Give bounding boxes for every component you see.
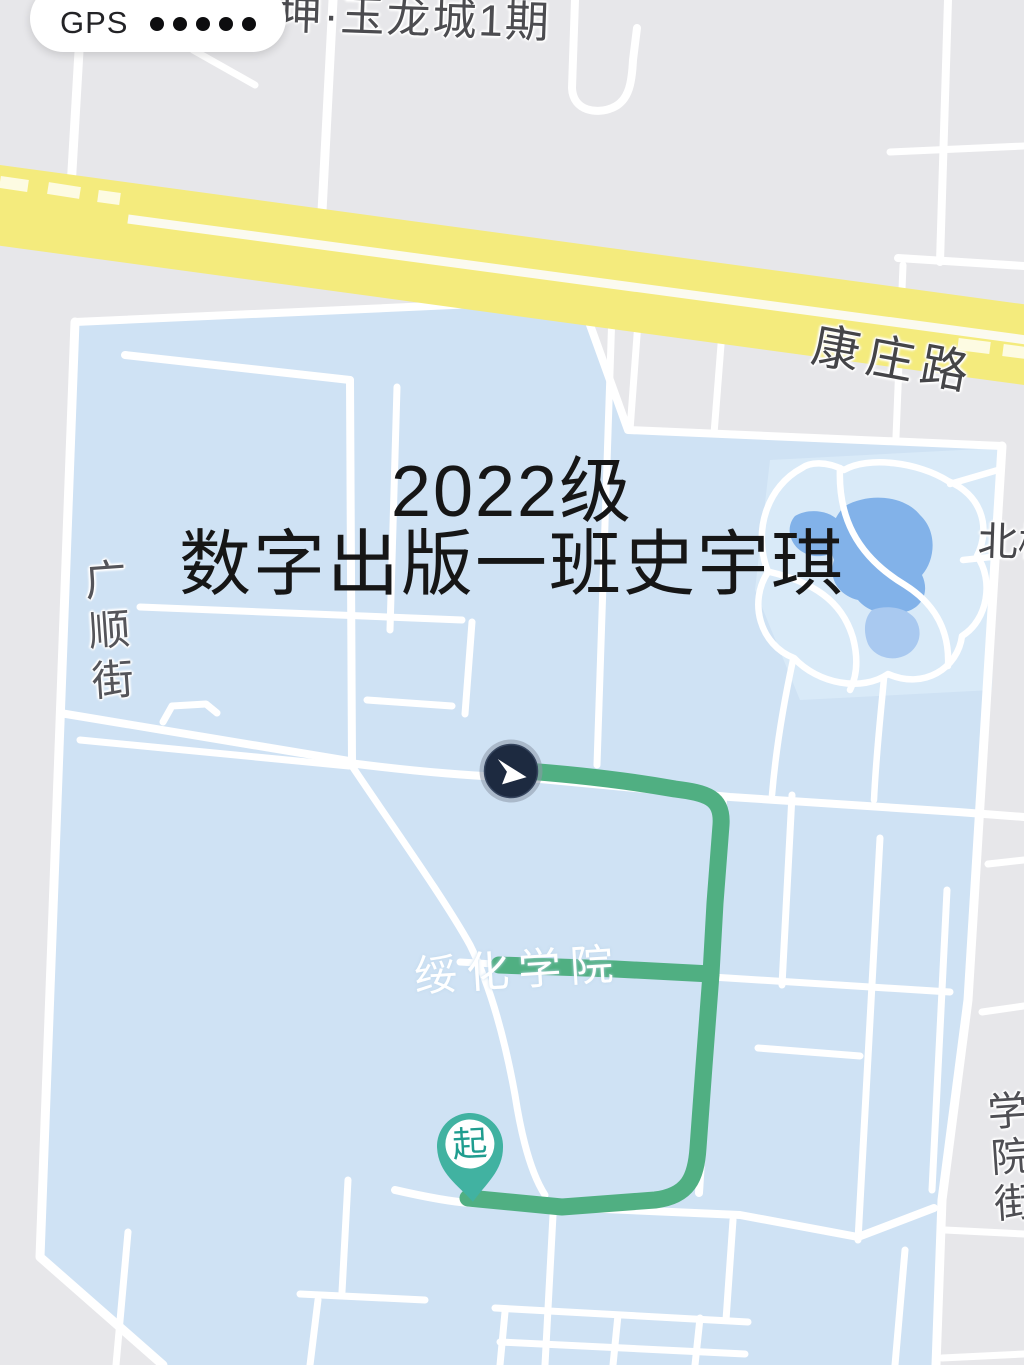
watermark-line1: 2022级: [0, 456, 1024, 529]
watermark: 2022级 数字出版一班史宇琪: [0, 456, 1024, 602]
gps-signal-dots: [150, 17, 256, 31]
gps-label: GPS: [60, 5, 128, 41]
map-canvas[interactable]: 起 坤·玉龙城1期 康庄路 广顺街 学院街 北校 绥化学院 2022级 数字出版…: [0, 0, 1024, 1365]
road-label-xueyuan: 学院街: [973, 1088, 1024, 1230]
gps-status-pill: GPS: [30, 0, 286, 52]
map-geometry: 起: [0, 0, 1024, 1365]
gps-signal-dot: [150, 17, 164, 31]
start-pin-label: 起: [451, 1124, 488, 1165]
gps-signal-dot: [196, 17, 210, 31]
position-marker[interactable]: [480, 740, 543, 803]
gps-signal-dot: [242, 17, 256, 31]
gps-signal-dot: [173, 17, 187, 31]
poi-label-campus: 绥化学院: [412, 930, 623, 1005]
gps-signal-dot: [219, 17, 233, 31]
watermark-line2: 数字出版一班史宇琪: [0, 529, 1024, 602]
